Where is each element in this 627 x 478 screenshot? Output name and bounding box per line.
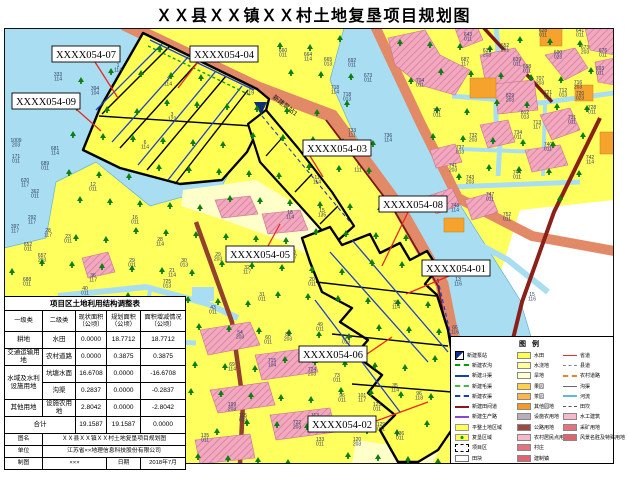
svg-text:XXXX054-06: XXXX054-06 (303, 350, 363, 361)
parcel-number-label: 333114 (54, 72, 63, 83)
parcel-number-label: 688011 (23, 277, 32, 288)
parcel-number-label: 123011 (373, 402, 382, 413)
purple-line-icon (455, 416, 469, 418)
legend-item: 建制镇 (517, 453, 563, 463)
parcel-number-label: 676011 (599, 48, 608, 59)
parcel-number-label: 687117 (461, 57, 470, 68)
parcel-number-label: 362011 (31, 189, 40, 200)
pump-square-icon (455, 351, 464, 360)
legend-item: 农村道路 (563, 371, 613, 381)
parcel-number-label: 690023 (554, 50, 563, 61)
parcel-number-label: 733111 (348, 128, 357, 139)
parcel-number-label: 724203 (308, 367, 317, 378)
fill-yellow-icon (455, 424, 469, 431)
legend-item: 村庄 (517, 443, 563, 453)
legend-swatch (517, 393, 531, 400)
parcel-number-label: 812013 (521, 110, 530, 121)
parcel-number-label: 620117 (21, 178, 30, 189)
legend-label: 采矿用地 (580, 424, 600, 431)
legend-label: 新建泵站 (467, 352, 487, 359)
legend-swatch (517, 444, 531, 451)
landuse-class1: 其他用地 (5, 400, 43, 417)
parcel-number-label: 743203 (466, 175, 475, 186)
fill-yellow-dot-icon (455, 434, 469, 441)
legend-item: 果园 (517, 381, 563, 391)
legend-item: 设施农用地 (517, 412, 563, 422)
table-header: 现状面积（公顷） (76, 311, 107, 332)
parcel-number-label: 133011 (316, 437, 325, 448)
parcel-number-label: 722203 (293, 420, 302, 431)
parcel-number-label: 727011 (433, 108, 442, 119)
legend-label: 新建生产路 (472, 413, 497, 420)
red-line-icon (563, 355, 577, 356)
table-header: 二级类 (43, 311, 76, 332)
parcel-number-label: 692011 (348, 58, 357, 69)
legend-item: 河流 (563, 391, 613, 401)
green-dash-icon (455, 364, 469, 366)
landuse-adjustment-table: 项目区土地利用结构调整表一级类二级类现状面积（公顷）规划面积（公顷）面积增减情况… (4, 296, 186, 464)
maker-value: ××× (43, 458, 107, 470)
legend-item: 新建农渠 (455, 391, 517, 401)
parcel-number-label: 681114 (51, 146, 60, 157)
legend-label: 复垦区域 (472, 434, 492, 441)
landuse-class2: 设施农用地 (43, 400, 76, 417)
fill-white-icon (455, 455, 469, 462)
parcel-number-label: 643011 (464, 32, 473, 43)
legend-item: 风景名胜及特殊用地 (563, 432, 613, 442)
legend-item: 复垦区域 (455, 432, 517, 442)
legend-label: 设施农用地 (534, 413, 559, 420)
parcel-number-label: 740011 (544, 142, 553, 153)
parcel-number-label: 715104 (268, 358, 277, 369)
darkred-line-icon (455, 406, 469, 408)
legend-label: 新建农渠 (472, 393, 492, 400)
parcel-number-label: 135011 (201, 433, 210, 444)
legend-item: 水田 (517, 350, 563, 360)
table-header: 规划面积（公顷） (107, 311, 141, 332)
legend-label: 新建农沟 (472, 362, 492, 369)
legend-item: 新建生产路 (455, 412, 517, 422)
parcel-number-label: 728011 (588, 105, 597, 116)
parcel-number-label: 292117 (28, 215, 37, 226)
legend-label: 风景名胜及特殊用地 (580, 434, 625, 441)
parcel-number-label: 136011 (396, 431, 405, 442)
legend-item: 其他园地 (517, 401, 563, 411)
black-dash-rect-icon (455, 444, 469, 452)
landuse-class2: 沟渠 (43, 383, 76, 400)
legend-label: 其他园地 (534, 403, 554, 410)
legend-column-landuse: 水田水浇地旱地果园茶园其他园地设施农用地公路用地农村居民点用地村庄建制镇 (517, 350, 563, 463)
legend-label: 新建斗渠 (472, 372, 492, 379)
parcel-number-label: 728013 (342, 335, 351, 346)
landuse-class1: 交通运输用地 (5, 349, 43, 366)
legend-item: 平整土地区域 (455, 422, 517, 432)
legend-column-symbols: 新建泵站新建农沟新建斗渠新建毛渠新建农渠新建田间道新建生产路平整土地区域复垦区域… (451, 350, 517, 463)
legend-label: 新建田间道 (472, 403, 497, 410)
legend-label: 省道 (580, 352, 590, 359)
parcel-number-label: 120203 (353, 437, 362, 448)
parcel-number-label: 732203 (469, 133, 478, 144)
parcel-number-label: 718013 (343, 92, 352, 103)
legend-label: 果园 (534, 383, 544, 390)
legend-swatch (517, 372, 531, 379)
parcel-number-label: 742114 (586, 155, 595, 166)
legend-swatch (517, 403, 531, 410)
legend-item: 采矿用地 (563, 422, 613, 432)
table-header: 面积增减情况（公顷） (141, 311, 186, 332)
legend-label: 水浇地 (534, 362, 549, 369)
thin-line-icon (563, 386, 577, 387)
legend-item: 水工建筑 (563, 412, 613, 422)
parcel-number-label: 639011 (513, 57, 522, 68)
legend-label: 河流 (580, 393, 590, 400)
legend-item: 县道 (563, 360, 613, 370)
landuse-class2: 水田 (43, 332, 76, 349)
legend-swatch (517, 413, 531, 420)
orange-dashdot-icon (563, 375, 577, 377)
legend-label: 平整土地区域 (472, 424, 502, 431)
legend-label: 沟渠 (580, 383, 590, 390)
parcel-number-label: 628011 (539, 28, 548, 39)
legend-item: 新建斗渠 (455, 371, 517, 381)
planning-map-page: ＸＸ县ＸＸ镇ＸＸ村土地复垦项目规划图 (0, 0, 627, 478)
legend-item: 旱地 (517, 371, 563, 381)
legend-item: 农村居民点用地 (517, 432, 563, 442)
legend-label: 田块 (472, 455, 482, 462)
legend-label: 农村道路 (580, 372, 600, 379)
parcel-number-label: 704011 (416, 78, 425, 89)
parcel-number-label: 199203 (228, 402, 237, 413)
gray-dash2-icon (563, 406, 577, 407)
parcel-number-label: 721011 (544, 90, 553, 101)
svg-text:XXXX054-04: XXXX054-04 (194, 50, 255, 61)
legend-item: 新建田间道 (455, 401, 517, 411)
parcel-number-label: 736114 (384, 133, 393, 144)
parcel-number-label: 1009203 (10, 138, 21, 149)
parcel-number-label: 741203 (449, 163, 458, 174)
parcel-number-label: 397117 (11, 224, 20, 235)
parcel-number-label: 737013 (456, 145, 465, 156)
parcel-number-label: 698011 (523, 64, 532, 75)
legend-column-lines: 省道县道农村道路沟渠河流田坎水工建筑采矿用地风景名胜及特殊用地 (563, 350, 613, 463)
parcel-number-label: 725013 (163, 279, 172, 290)
legend-swatch (517, 383, 531, 390)
parcel-number-label: 734011 (514, 130, 523, 141)
gray-dash-icon (563, 365, 577, 366)
parcel-number-label: 731011 (568, 115, 577, 126)
map-name-value: ＸＸ县ＸＸ镇ＸＸ村土地复垦项目规划图 (43, 434, 186, 446)
svg-text:XXXX054-01: XXXX054-01 (426, 264, 486, 275)
parcel-number-label: 752011 (503, 212, 512, 223)
blue-dash-icon (455, 395, 469, 397)
parcel-number-label: 652201 (501, 43, 510, 54)
parcel-number-label: 720023 (576, 91, 585, 102)
parcel-number-label: 673011 (364, 73, 373, 84)
blue-solid-icon (455, 375, 469, 377)
legend-label: 建制镇 (534, 455, 549, 462)
cyan-line-icon (563, 395, 577, 397)
legend-swatch (517, 352, 531, 359)
svg-text:XXXX054-07: XXXX054-07 (56, 50, 116, 61)
parcel-number-label: 748114 (451, 203, 460, 214)
parcel-number-label: 115013 (239, 413, 248, 424)
legend-label: 公路用地 (534, 424, 554, 431)
legend-label: 水工建筑 (580, 413, 600, 420)
parcel-number-label: 639203 (483, 48, 492, 59)
legend-item: 茶园 (517, 391, 563, 401)
svg-text:XXXX054-08: XXXX054-08 (383, 200, 443, 211)
unit-label: 单位 (5, 446, 43, 458)
legend-item: 沟渠 (563, 381, 613, 391)
table-title: 项目区土地利用结构调整表 (5, 297, 186, 311)
legend-swatch (563, 424, 577, 431)
legend-swatch (517, 362, 531, 369)
svg-text:XXXX054-05: XXXX054-05 (230, 250, 290, 261)
legend-swatch (563, 413, 577, 420)
legend-swatch (517, 424, 531, 431)
legend-label: 新建毛渠 (472, 383, 492, 390)
parcel-number-label: 641011 (576, 28, 585, 39)
legend-item: 新建农沟 (455, 360, 517, 370)
parcel-number-label: 101117 (358, 393, 367, 404)
parcel-number-label: 394104 (91, 86, 100, 97)
parcel-number-label: 712013 (559, 88, 568, 99)
legend-swatch (517, 434, 531, 441)
parcel-number-label: 129011 (377, 422, 386, 433)
parcel-number-label: 707203 (536, 76, 545, 87)
legend-item: 田坎 (563, 401, 613, 411)
parcel-number-label: 718114 (331, 85, 340, 96)
date-value: 2018年7月 (141, 458, 186, 470)
legend-swatch (517, 455, 531, 462)
unit-value: 江苏省××地理信息科技股份有限公司 (43, 446, 186, 458)
legend-label: 村庄 (534, 444, 544, 451)
legend-label: 县道 (580, 362, 590, 369)
pond (192, 287, 214, 301)
legend-item: 田块 (455, 453, 517, 463)
parcel-number-label: 713117 (533, 120, 542, 131)
green-dash2-icon (455, 385, 469, 387)
legend-item: 水浇地 (517, 360, 563, 370)
parcel-number-label: 693011 (596, 66, 605, 77)
legend-item: 项目区 (455, 443, 517, 453)
legend-label: 水田 (534, 352, 544, 359)
legend-label: 田坎 (580, 403, 590, 410)
svg-text:XXXX054-09: XXXX054-09 (16, 97, 76, 108)
parcel-number-label: 657203 (38, 253, 47, 264)
parcel-number-label: 829203 (506, 93, 515, 104)
landuse-class2: 农村道路 (43, 349, 76, 366)
legend-title: 图例 (451, 337, 613, 350)
landuse-class2: 坑塘水面 (43, 366, 76, 383)
svg-text:XXXX054-02: XXXX054-02 (312, 420, 372, 431)
parcel-number-label: 716203 (574, 80, 583, 91)
legend-swatch (563, 434, 577, 441)
landuse-class1: 水域及水利设施用地 (5, 366, 43, 400)
landuse-class1: 耕地 (5, 332, 43, 349)
date-label: 日期 (107, 458, 141, 470)
legend-label: 项目区 (472, 444, 487, 451)
parcel-number-label: 744011 (513, 170, 522, 181)
legend-label: 旱地 (534, 372, 544, 379)
table-header: 一级类 (5, 311, 43, 332)
total-label: 合计 (5, 417, 76, 434)
parcel-number-label: 665013 (324, 57, 333, 68)
parcel-number-label: 660011 (279, 48, 288, 59)
parcel-number-label: 689011 (41, 161, 50, 172)
map-name-label: 图名 (5, 434, 43, 446)
legend-item: 公路用地 (517, 422, 563, 432)
maker-label: 制图 (5, 458, 43, 470)
parcel-number-label: 171011 (12, 154, 21, 165)
legend-item: 新建泵站 (455, 350, 517, 360)
parcel-number-label: 664114 (304, 52, 313, 63)
legend-item: 新建毛渠 (455, 381, 517, 391)
map-legend: 图例 新建泵站新建农沟新建斗渠新建毛渠新建农渠新建田间道新建生产路平整土地区域复… (450, 336, 614, 464)
parcel-number-label: 652011 (24, 242, 33, 253)
parcel-number-label: 673203 (581, 45, 590, 56)
legend-label: 茶园 (534, 393, 544, 400)
svg-text:XXXX054-03: XXXX054-03 (307, 144, 367, 155)
legend-item: 省道 (563, 350, 613, 360)
parcel-number-label: 747011 (486, 192, 495, 203)
